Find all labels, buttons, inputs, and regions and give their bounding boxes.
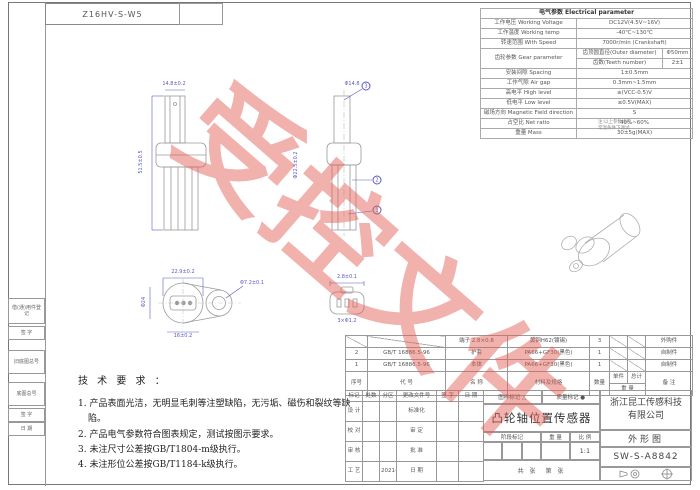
technical-requirement-item: 2. 产品电气参数符合图表规定，测试按图示要求。 (78, 428, 352, 443)
margin-blocks: 借(通)用件登记签 字旧底图总号底图总号签 字日 期 (8, 298, 45, 436)
parameter-value: ≥(VCC-0.5)V (577, 89, 693, 99)
parts-list-row: 1GB/T 16886.5-96本体PA66+GF30(黑色)1自制件 (346, 360, 693, 372)
parameter-label: 安装间隙 Spacing (481, 69, 577, 79)
balloon-callout: 3 (362, 82, 371, 91)
signature-cell (380, 422, 397, 442)
technical-requirement-item: 1. 产品表面光洁，无明显毛刺等注塑缺陷，无污垢、磁伤和裂纹等缺陷。 (78, 397, 352, 428)
dimension-label: Φ7.2±0.1 (240, 280, 264, 286)
signature-cell (459, 402, 484, 422)
revision-header-cell: 标记 (346, 391, 363, 402)
mark-cell-2: 质量标记 ● (542, 390, 601, 404)
technical-requirements: 技 术 要 求 ： 1. 产品表面光洁，无明显毛刺等注塑缺陷，无污垢、磁伤和裂纹… (78, 372, 352, 473)
sheet-count: 共 张 第 张 (483, 460, 600, 481)
company-line-2: 有限公司 (628, 410, 664, 423)
signature-row: 校 对审 定 (346, 422, 484, 442)
stage-header-row: 阶段标记 重 量 比 例 (483, 432, 600, 442)
balloon-callout: 2 (373, 176, 382, 185)
electrical-table-note: 注:以上参数均在 常温条件下测试 (598, 120, 694, 132)
dimension-label: 51.5±0.5 (138, 150, 144, 173)
parameter-label: 转速范围 With Speed (481, 39, 577, 49)
signature-cell (363, 442, 380, 462)
parameter-sub-label: 齿数(Teeth number) (577, 59, 663, 69)
company-name: 浙江昆工传感科技 有限公司 (600, 390, 692, 430)
parameter-label: 工作温度 Working temp (481, 29, 577, 39)
technical-requirement-item: 4. 未注形位公差按GB/T1184-k级执行。 (78, 458, 352, 473)
drawing-number: SW-S-A8842 (600, 447, 692, 467)
model-label: Z16HV-S-W5 (82, 10, 142, 19)
title-block: 端子 2.8×0.8黄铜H62(镀锡)3外购件2GB/T 16886.5-96护… (345, 335, 692, 481)
parameter-value: -40℃~130℃ (577, 29, 693, 39)
parts-cell-name: 本体 (446, 360, 508, 372)
document-type: 外形图 (600, 430, 692, 447)
parts-cell-code: GB/T 16886.5-96 (368, 360, 446, 372)
parts-cell-no (346, 336, 368, 348)
parts-cell-remark: 外购件 (646, 336, 693, 348)
margin-block: 日 期 (8, 422, 45, 436)
signature-cell: 审 核 (346, 442, 363, 462)
dimension-label: 22.9±0.2 (171, 269, 194, 275)
revision-header-row: 标记处数分区更改文件号签 字日 期 (346, 391, 484, 402)
mark-cells: 图样标记 △ 质量标记 ● (483, 390, 600, 404)
margin-block: 借(通)用件登记 (8, 298, 45, 324)
parts-cell-no: 1 (346, 360, 368, 372)
weight-header: 重 量 (541, 432, 570, 442)
signature-cell (437, 422, 459, 442)
parts-cell-unit (610, 360, 628, 372)
parameter-value: S (577, 109, 693, 119)
parts-cell-qty: 1 (590, 348, 610, 360)
datum-target-icon (660, 468, 674, 480)
parts-cell-name: 护套 (446, 348, 508, 360)
parts-cell-remark: 自制件 (646, 348, 693, 360)
signature-cell: 标准化 (397, 402, 437, 422)
title-block-right: 浙江昆工传感科技 有限公司 外形图 SW-S-A8842 (600, 390, 692, 481)
parameter-label: 齿轮参数 Gear parameter (481, 49, 577, 69)
parts-cell-total (628, 336, 646, 348)
dimension-label: 14.8±0.2 (162, 81, 185, 87)
parameter-label: 低电平 Low level (481, 99, 577, 109)
parameter-label: 重量 Mass (481, 129, 577, 139)
inner-frame-line (45, 2, 46, 486)
revision-header-cell: 签 字 (437, 391, 459, 402)
electrical-table-row: 齿轮参数 Gear parameter齿顶圆直径(Outer diameter)… (481, 49, 693, 59)
parts-cell-code (368, 336, 446, 348)
company-line-1: 浙江昆工传感科技 (610, 397, 682, 410)
revision-header-cell: 处数 (363, 391, 380, 402)
signature-cell (459, 422, 484, 442)
dimension-label: 16±0.2 (174, 333, 193, 339)
parameter-sub-label: 齿顶圆直径(Outer diameter) (577, 49, 663, 59)
signature-row: 设 计标准化 (346, 402, 484, 422)
technical-requirements-list: 1. 产品表面光洁，无明显毛刺等注塑缺陷，无污垢、磁伤和裂纹等缺陷。2. 产品电… (78, 397, 352, 473)
margin-block: 旧底图总号 (8, 350, 45, 374)
margin-block: 底图总号 (8, 382, 45, 406)
parts-header-unit: 单件 (610, 372, 628, 384)
dimension-label: 3×Φ1.2 (337, 318, 356, 324)
margin-block: 签 字 (8, 408, 45, 422)
parts-list-row: 2GB/T 16886.5-96护套PA66+GF30(黑色)1自制件 (346, 348, 693, 360)
signature-row: 审 核批 准 (346, 442, 484, 462)
scale-value: 1:1 (570, 442, 600, 460)
parameter-value: Φ50mm (663, 49, 693, 59)
parameter-label: 占空比 Net ratio (481, 119, 577, 129)
electrical-table-row: 低电平 Low level≤0.5V(MAX) (481, 99, 693, 109)
parts-cell-unit (610, 336, 628, 348)
scale-header: 比 例 (570, 432, 600, 442)
revision-header-cell: 日 期 (459, 391, 484, 402)
electrical-table-row: 工作电压 Working VoltageDC12V(4.5V~16V) (481, 19, 693, 29)
signature-cell: 设 计 (346, 402, 363, 422)
parameter-label: 高电平 High level (481, 89, 577, 99)
electrical-table-row: 安装间隙 Spacing1±0.5mm (481, 69, 693, 79)
electrical-table-row: 高电平 High level≥(VCC-0.5)V (481, 89, 693, 99)
parameter-value: 0.3mm~1.5mm (577, 79, 693, 89)
signature-cell: 2021-08-16 (380, 462, 397, 482)
parameter-label: 工作电压 Working Voltage (481, 19, 577, 29)
parameter-value: 1±0.5mm (577, 69, 693, 79)
margin-block: 签 字 (8, 326, 45, 340)
revision-header-cell: 分区 (380, 391, 397, 402)
product-name: 凸轮轴位置传感器 (483, 404, 600, 432)
signature-cell (380, 402, 397, 422)
parts-list-table: 端子 2.8×0.8黄铜H62(镀锡)3外购件2GB/T 16886.5-96护… (345, 335, 693, 396)
title-block-middle: 图样标记 △ 质量标记 ● 凸轮轴位置传感器 阶段标记 重 量 比 例 1:1 … (483, 390, 600, 481)
parts-cell-total (628, 348, 646, 360)
parts-cell-unit (610, 348, 628, 360)
parameter-value: 7000r/min (Crankshaft) (577, 39, 693, 49)
drawing-sheet: Z16HV-S-W5 借(通)用件登记签 字旧底图总号底图总号签 字日 期 电气… (0, 0, 700, 490)
stage-mark-box (502, 442, 521, 460)
parts-list-row: 端子 2.8×0.8黄铜H62(镀锡)3外购件 (346, 336, 693, 348)
dimension-label: 2.8±0.1 (337, 274, 357, 280)
model-label-box: Z16HV-S-W5 (45, 3, 180, 25)
stage-value-row: 1:1 (483, 442, 600, 460)
parts-cell-qty: 1 (590, 360, 610, 372)
signature-cell: 工 艺 (346, 462, 363, 482)
signature-cell (459, 462, 484, 482)
dimension-label: Φ14.8 (344, 81, 359, 87)
stage-mark-box (522, 442, 541, 460)
signature-cell: 批 准 (397, 442, 437, 462)
parts-cell-remark: 自制件 (646, 360, 693, 372)
parts-cell-material: PA66+GF30(黑色) (508, 360, 590, 372)
electrical-table-row: 工作气隙 Air gap0.3mm~1.5mm (481, 79, 693, 89)
weight-value (541, 442, 570, 460)
signature-cell (437, 402, 459, 422)
parts-cell-material: 黄铜H62(镀锡) (508, 336, 590, 348)
signature-cell (459, 442, 484, 462)
electrical-table-title: 电气参数 Electrical parameter (481, 9, 693, 19)
signature-table: 标记处数分区更改文件号签 字日 期设 计标准化校 对审 定审 核批 准工 艺20… (345, 390, 484, 482)
parts-cell-qty: 3 (590, 336, 610, 348)
signature-cell: 日 期 (397, 462, 437, 482)
signature-cell (437, 442, 459, 462)
technical-requirement-item: 3. 未注尺寸公差按GB/T1804-m级执行。 (78, 443, 352, 458)
signature-cell (437, 462, 459, 482)
dimension-label: Φ24 (141, 297, 147, 307)
parts-cell-no: 2 (346, 348, 368, 360)
parameter-label: 工作气隙 Air gap (481, 79, 577, 89)
parts-cell-code: GB/T 16886.5-96 (368, 348, 446, 360)
parts-cell-total (628, 360, 646, 372)
model-label-extension-box (179, 3, 223, 25)
stage-mark-header: 阶段标记 (483, 432, 541, 442)
signature-cell (363, 422, 380, 442)
parts-cell-material: PA66+GF30(黑色) (508, 348, 590, 360)
electrical-table-row: 转速范围 With Speed7000r/min (Crankshaft) (481, 39, 693, 49)
signature-row: 工 艺2021-08-16日 期 (346, 462, 484, 482)
signature-cell: 校 对 (346, 422, 363, 442)
parts-header-total: 总计 (628, 372, 646, 384)
electrical-table-row: 工作温度 Working temp-40℃~130℃ (481, 29, 693, 39)
first-angle-projection-icon (618, 468, 642, 480)
signature-cell (380, 442, 397, 462)
parameter-label: 磁场方向 Magnetic Field direction (481, 109, 577, 119)
mark-cell-1: 图样标记 △ (483, 390, 542, 404)
revision-header-cell: 更改文件号 (397, 391, 437, 402)
electrical-parameter-table: 电气参数 Electrical parameter 工作电压 Working V… (480, 8, 692, 139)
parameter-value: 2±1 (663, 59, 693, 69)
parameter-value: ≤0.5V(MAX) (577, 99, 693, 109)
projection-symbols (600, 467, 692, 481)
parameter-value: DC12V(4.5V~16V) (577, 19, 693, 29)
technical-requirements-title: 技 术 要 求 ： (78, 372, 352, 387)
parts-cell-name: 端子 2.8×0.8 (446, 336, 508, 348)
signature-cell (363, 462, 380, 482)
electrical-table-row: 磁场方向 Magnetic Field directionS (481, 109, 693, 119)
dimension-label: Φ22.5±0.2 (293, 151, 299, 178)
stage-mark-box (483, 442, 502, 460)
signature-cell (363, 402, 380, 422)
signature-cell: 审 定 (397, 422, 437, 442)
balloon-callout: 1 (373, 206, 382, 215)
